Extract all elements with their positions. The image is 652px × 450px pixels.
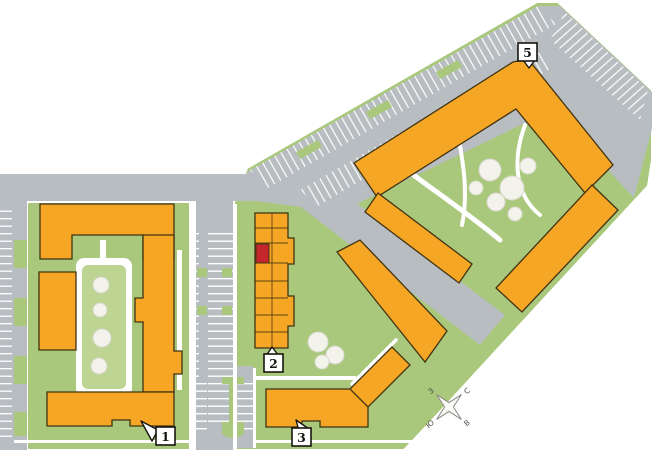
compass-east: В xyxy=(462,418,472,428)
highlighted-unit[interactable] xyxy=(256,244,269,263)
compass-north: С xyxy=(462,386,472,396)
marker-label-1: 1 xyxy=(161,429,170,444)
building-1-south-wing[interactable] xyxy=(47,392,174,426)
building-2[interactable] xyxy=(255,213,294,348)
building-1-west-wing[interactable] xyxy=(39,272,76,350)
building-3-south-bar[interactable] xyxy=(266,389,368,427)
marker-label-3: 3 xyxy=(297,430,306,445)
site-plan-map: 1 2 3 5 З С Ю В xyxy=(0,0,652,450)
marker-label-2: 2 xyxy=(269,356,278,371)
marker-label-5: 5 xyxy=(523,45,532,60)
site-plan-svg: 1 2 3 5 З С Ю В xyxy=(0,0,652,450)
